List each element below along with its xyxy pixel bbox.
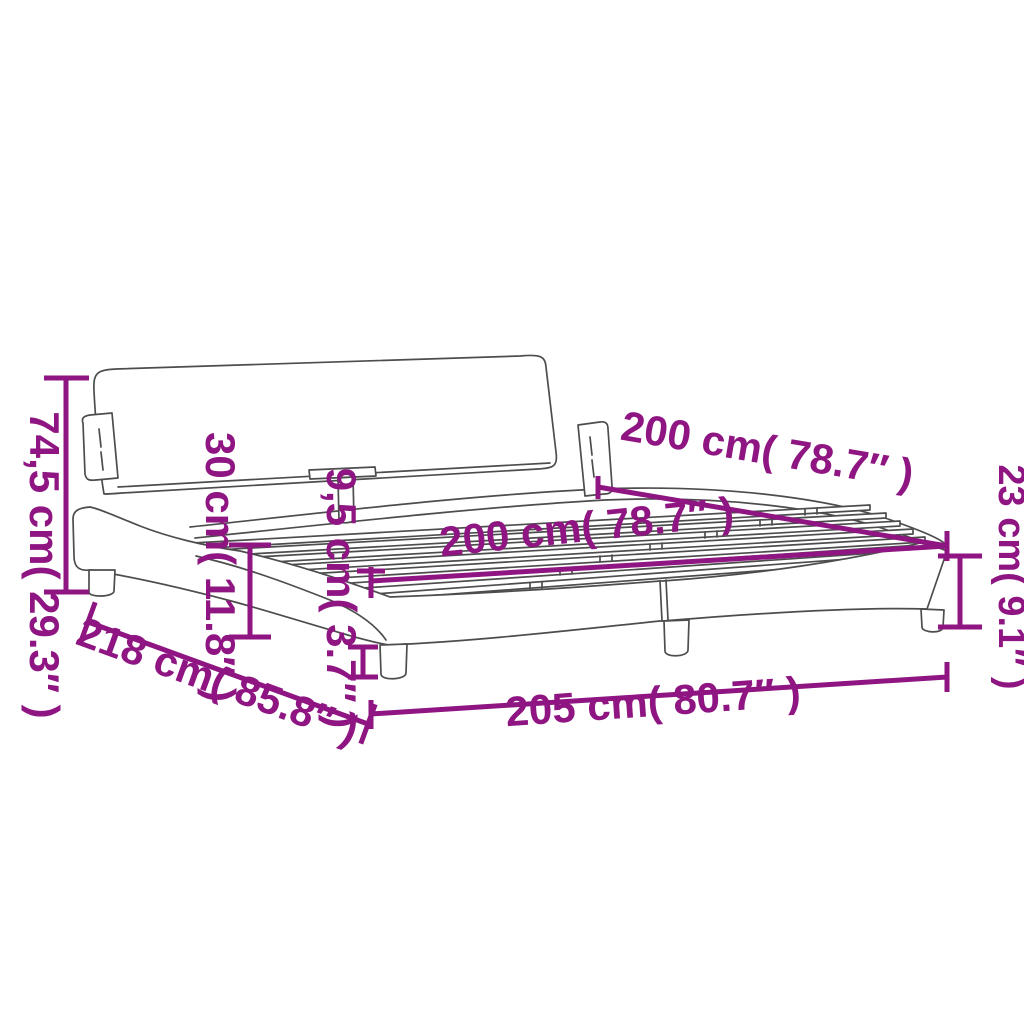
dimension-diagram: 74,5 cm( 29.3″ ) 30 cm( 11.8″ ) 9,5 cm( … <box>0 0 1024 1024</box>
dim-line-frame-height <box>938 556 982 627</box>
label-frame-height: 23 cm( 9.1″ ) <box>990 464 1024 689</box>
label-length-top: 200 cm( 78.7″ ) <box>618 402 917 498</box>
label-rail-height: 9,5 cm( 3.7″ ) <box>318 468 365 729</box>
bed-dimension-drawing: 74,5 cm( 29.3″ ) 30 cm( 11.8″ ) 9,5 cm( … <box>0 0 1024 1024</box>
leg-head-left <box>89 570 115 596</box>
leg-front-left <box>380 644 407 679</box>
label-total-height: 74,5 cm( 29.3″ ) <box>21 411 68 718</box>
leg-front-middle <box>664 620 689 656</box>
label-base-length: 205 cm( 80.7″ ) <box>504 668 802 736</box>
headboard-right-bracket <box>578 422 612 496</box>
